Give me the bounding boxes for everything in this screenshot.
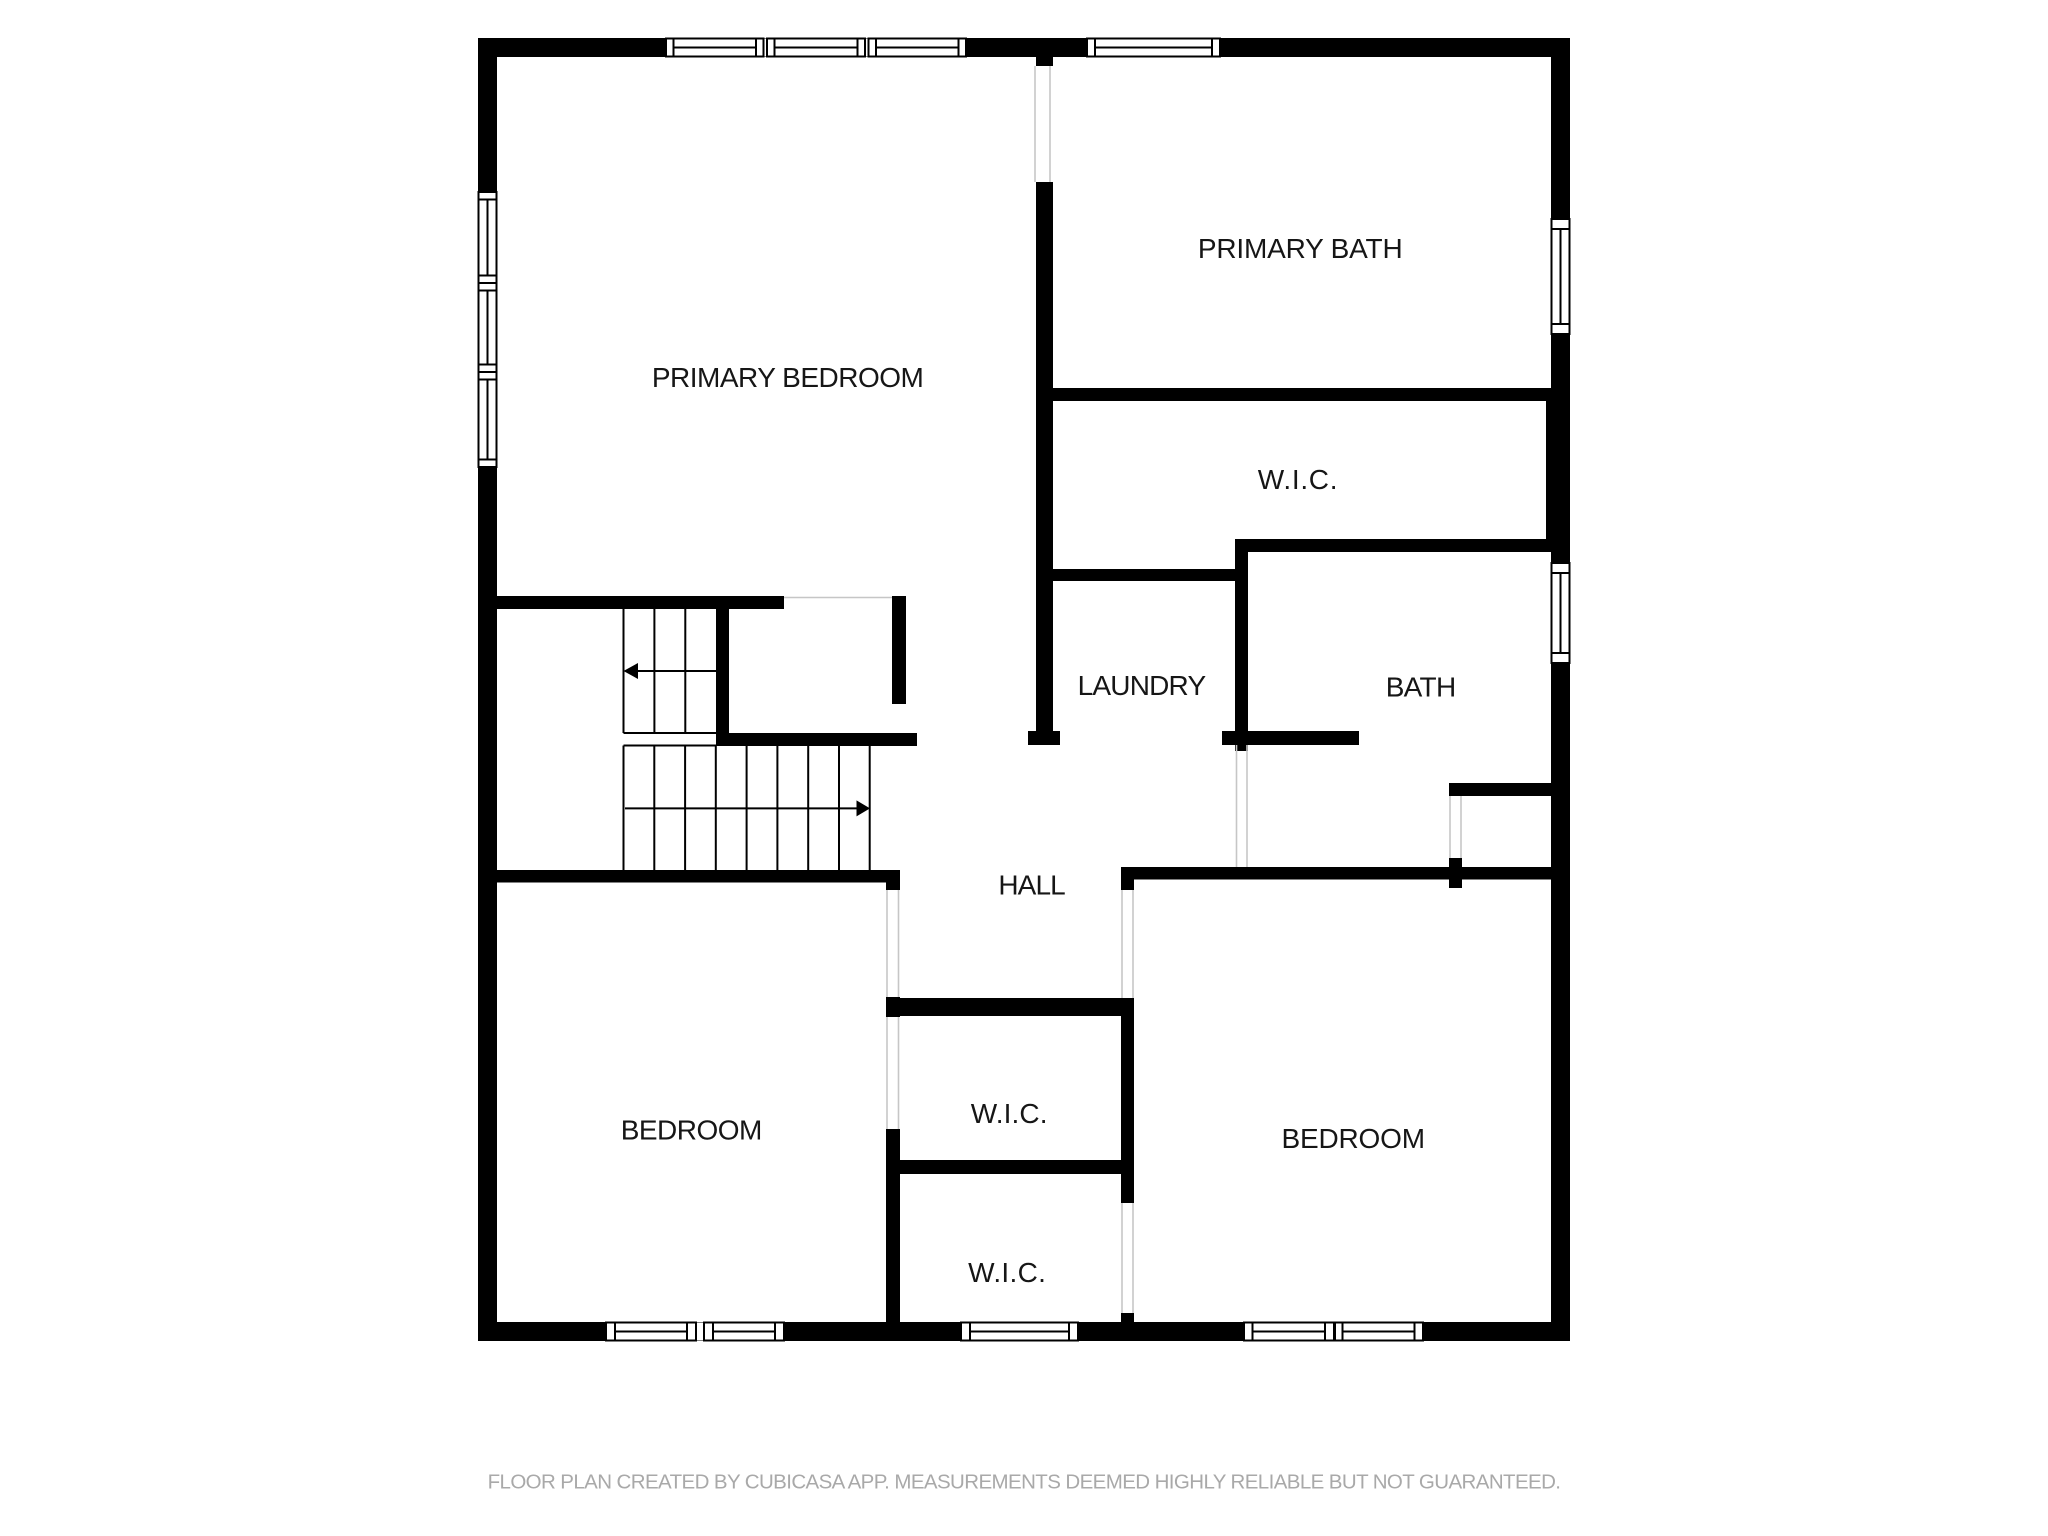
svg-text:LAUNDRY: LAUNDRY (1078, 670, 1207, 701)
svg-text:HALL: HALL (998, 870, 1065, 901)
svg-text:W.I.C.: W.I.C. (971, 1098, 1048, 1129)
svg-text:FLOOR PLAN CREATED BY CUBICASA: FLOOR PLAN CREATED BY CUBICASA APP. MEAS… (488, 1471, 1561, 1494)
svg-text:PRIMARY BEDROOM: PRIMARY BEDROOM (652, 362, 924, 393)
svg-text:BATH: BATH (1386, 672, 1456, 703)
svg-text:BEDROOM: BEDROOM (1282, 1123, 1425, 1154)
svg-text:W.I.C.: W.I.C. (1258, 464, 1338, 495)
svg-text:PRIMARY BATH: PRIMARY BATH (1198, 233, 1403, 264)
svg-text:W.I.C.: W.I.C. (968, 1257, 1046, 1288)
svg-text:BEDROOM: BEDROOM (621, 1115, 762, 1146)
